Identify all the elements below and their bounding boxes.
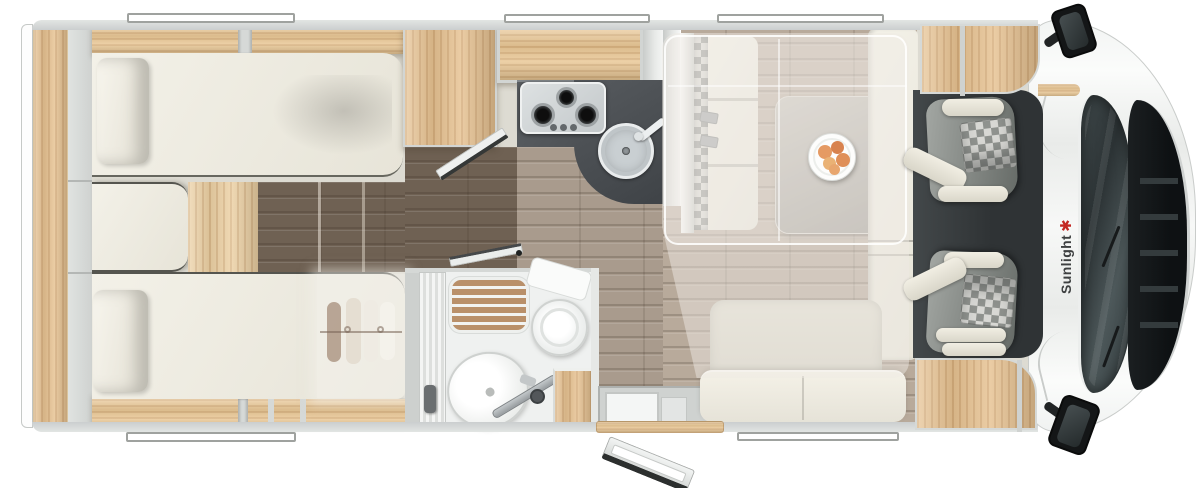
- toilet: [531, 299, 588, 356]
- center-step-cushion: [92, 182, 188, 272]
- brand-mark: Sunlight ✱: [1058, 162, 1074, 294]
- cab-wood-floor-bottom: [915, 358, 1037, 430]
- wood-divider: [1017, 360, 1022, 432]
- brand-text: Sunlight: [1058, 235, 1074, 294]
- wardrobe-ghost: [317, 274, 405, 398]
- basin-drain: [485, 387, 496, 398]
- door-hinge-dot: [516, 250, 522, 256]
- window-bottom-dinette: [737, 432, 899, 441]
- mirror-glass: [1056, 403, 1092, 449]
- platform-seam: [68, 180, 92, 182]
- screen-knob: [530, 389, 545, 404]
- step-edge-line: [318, 182, 321, 272]
- kitchen-overhead-cabinet: [497, 25, 643, 83]
- bedroom-step-floor: [258, 182, 405, 272]
- headboard-wood-panel: [33, 26, 68, 424]
- seat-armrest: [938, 186, 1008, 202]
- shower-wood-grate: [449, 277, 529, 333]
- window-top-bedroom: [127, 13, 295, 23]
- bed-seam-horizontal: [668, 85, 907, 87]
- overhead-cabinet-top: [92, 26, 403, 54]
- burner: [575, 103, 599, 127]
- hob-knob: [550, 124, 557, 131]
- dash-shelf-top: [1038, 84, 1080, 96]
- entry-wood-sill: [596, 421, 724, 433]
- bathroom-left-wall: [405, 268, 419, 432]
- wardrobe-block: [403, 26, 497, 147]
- bed-platform-edge: [68, 26, 92, 424]
- backrest-seam: [802, 376, 804, 420]
- seat-armrest: [936, 328, 1006, 342]
- window-top-dinette: [717, 14, 884, 23]
- fruit: [829, 164, 840, 175]
- hob-knob: [560, 124, 567, 131]
- gas-hob: [520, 82, 606, 134]
- seat-headrest-checker: [959, 117, 1017, 173]
- pillow: [93, 290, 148, 392]
- hob-knob: [570, 124, 577, 131]
- toilet-seat-ring: [540, 308, 579, 347]
- entry-door-open: [601, 436, 695, 488]
- sun-logo-icon: ✱: [1059, 219, 1074, 232]
- bathroom-cabinet: [553, 368, 591, 424]
- door-panel-line: [610, 444, 686, 482]
- pillow: [97, 58, 149, 164]
- step-edge-line: [362, 182, 365, 272]
- grille-slats: [1140, 148, 1178, 344]
- faucet-base: [634, 132, 643, 141]
- window-bottom-bedroom: [126, 432, 296, 442]
- windshield: [1078, 95, 1132, 393]
- burner: [556, 87, 577, 108]
- motorhome-floorplan: Sunlight ✱: [0, 0, 1200, 488]
- sink-drain: [622, 147, 630, 155]
- between-bed-wood-step: [188, 182, 258, 272]
- hanger-hook: [377, 326, 384, 333]
- wall-bottom: [32, 422, 1038, 432]
- mattress-foot-shade: [272, 75, 392, 155]
- seat-headrest-checker: [960, 273, 1017, 328]
- windshield-reflection: [1085, 101, 1129, 387]
- shower-door-handle: [424, 385, 436, 413]
- seat-armrest: [942, 343, 1006, 356]
- drop-down-bed-outline: [664, 35, 907, 245]
- mirror-glass: [1058, 10, 1090, 51]
- wood-divider: [960, 26, 965, 96]
- platform-seam: [68, 272, 92, 274]
- hanger-hook: [344, 326, 351, 333]
- bed-seam-vertical: [778, 39, 780, 241]
- fruit-plate: [808, 133, 856, 181]
- cabinet-divider: [238, 26, 252, 54]
- seat-bolster: [942, 99, 1004, 116]
- wardrobe-rail: [320, 331, 402, 333]
- cab-overhead-wood-top: [920, 24, 1040, 94]
- window-top-kitchen: [504, 14, 650, 23]
